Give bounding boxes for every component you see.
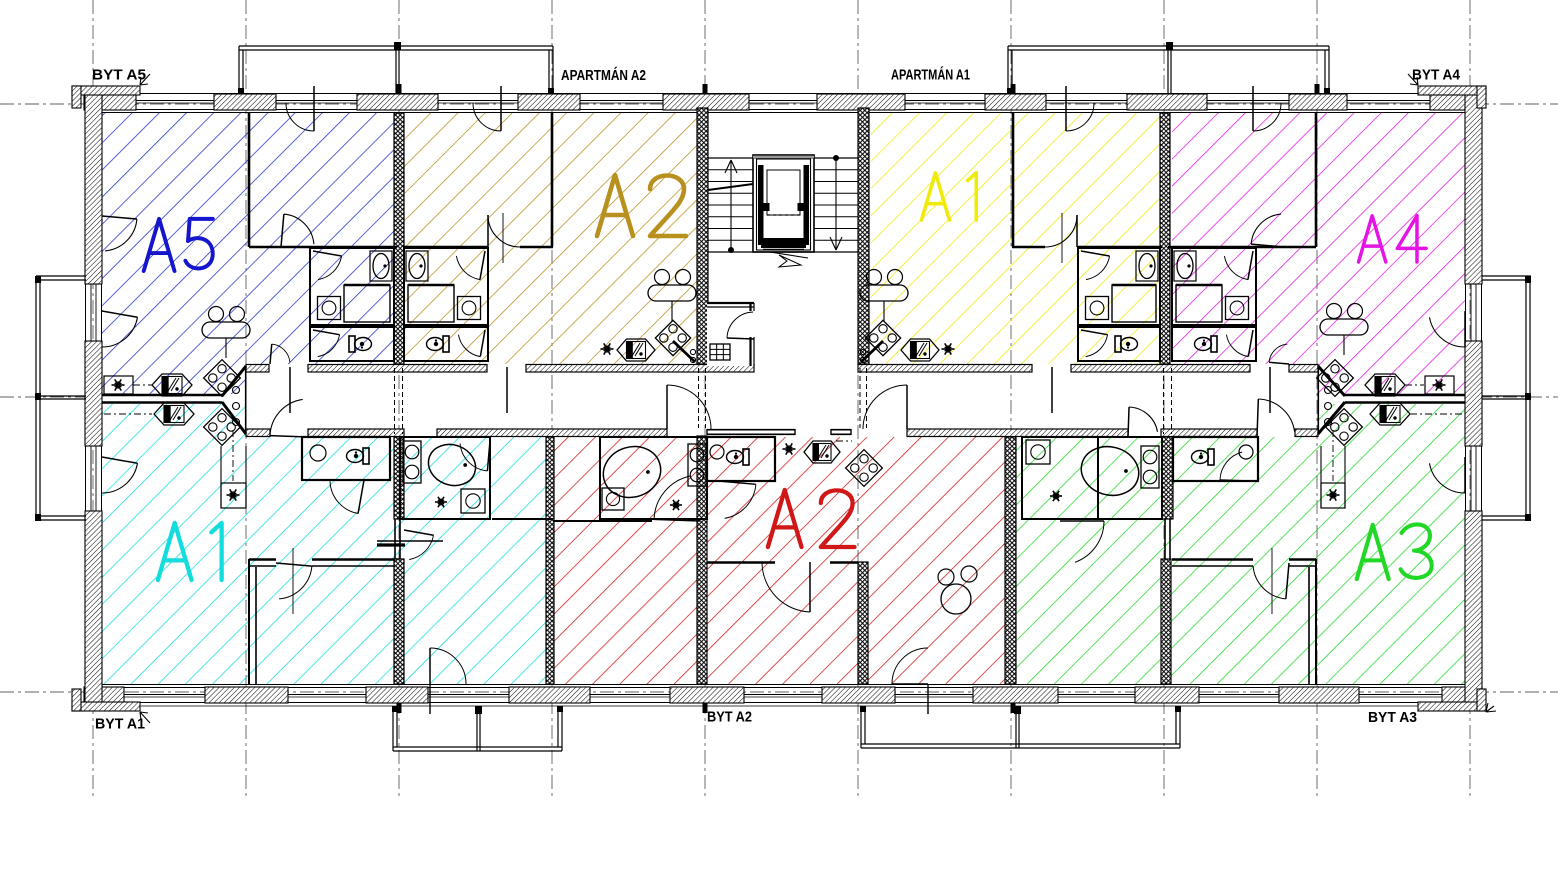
svg-text:BYT A2: BYT A2 — [707, 709, 752, 726]
svg-text:BYT A3: BYT A3 — [1368, 709, 1417, 726]
svg-text:APARTMÁN A2: APARTMÁN A2 — [561, 67, 646, 84]
svg-text:BYT A5: BYT A5 — [92, 67, 146, 84]
svg-text:APARTMÁN A1: APARTMÁN A1 — [891, 67, 970, 84]
svg-text:BYT A4: BYT A4 — [1412, 67, 1461, 84]
svg-text:BYT A1: BYT A1 — [95, 716, 145, 733]
